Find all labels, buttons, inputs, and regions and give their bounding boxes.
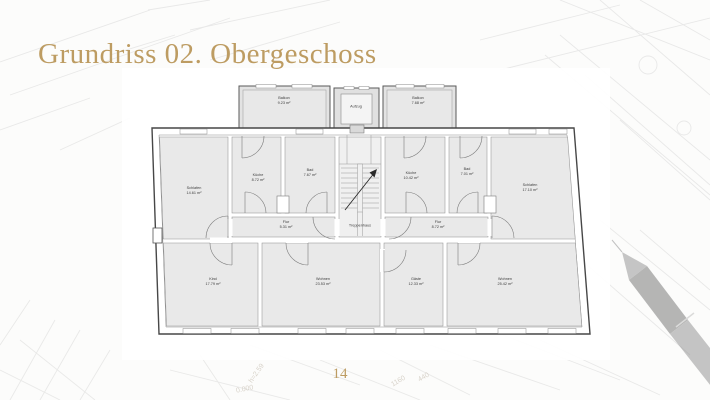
slide: { "slide": { "title": "Grundriss 02. Obe… <box>0 0 710 400</box>
page-title: Grundriss 02. Obergeschoss <box>38 38 377 71</box>
page-number: 14 <box>300 366 380 383</box>
balconies-group <box>239 85 456 131</box>
rooms-group <box>160 137 582 326</box>
pen-watermark <box>612 240 710 400</box>
